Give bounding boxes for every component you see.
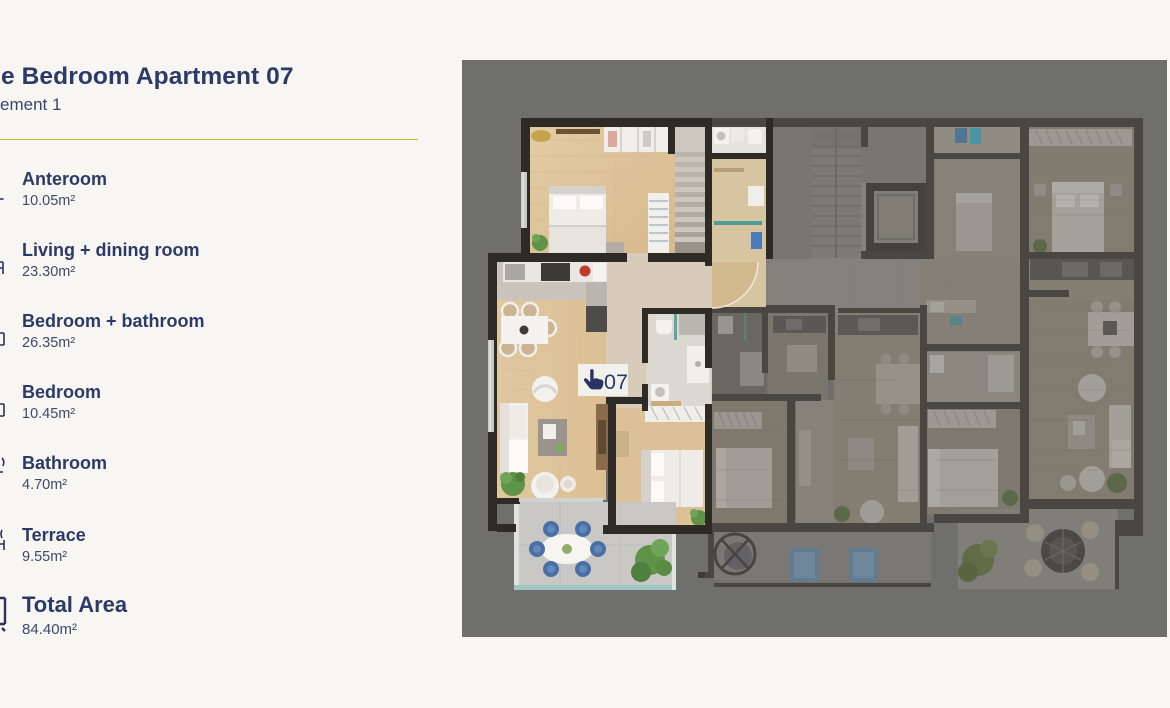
svg-text:07: 07 <box>604 370 628 394</box>
